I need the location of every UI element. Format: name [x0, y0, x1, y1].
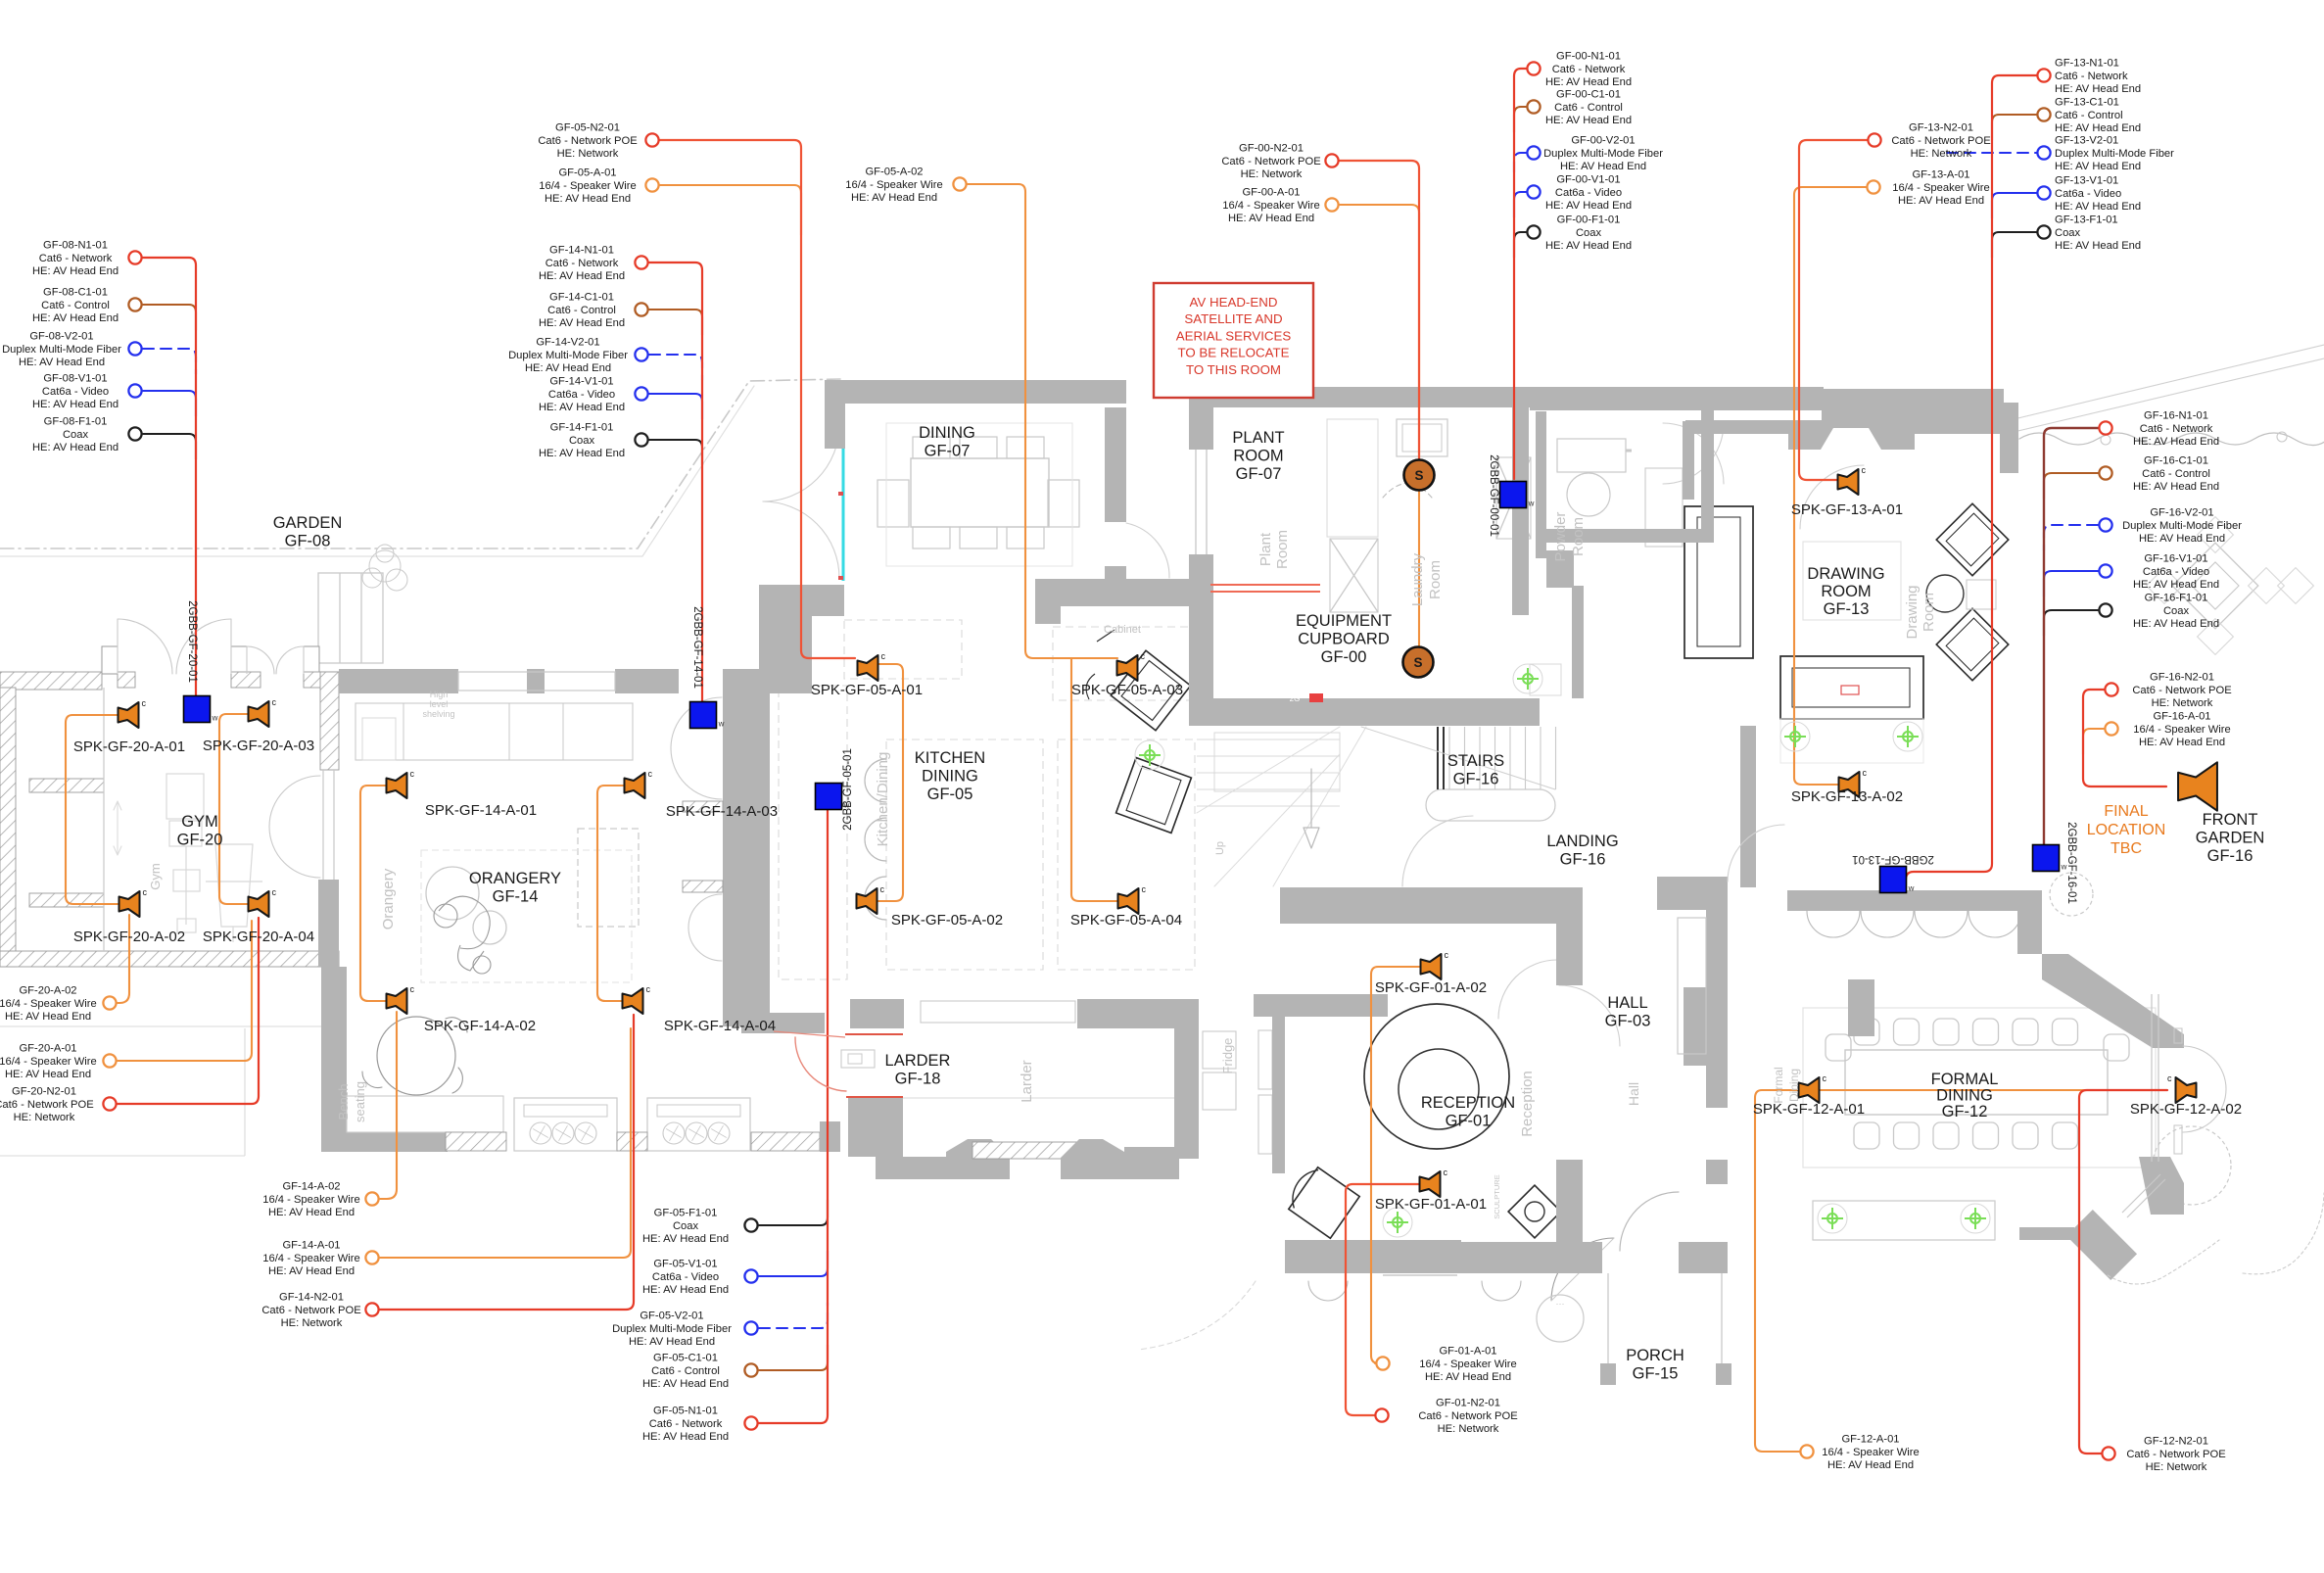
- svg-text:HE: AV Head End: HE: AV Head End: [2133, 481, 2219, 493]
- svg-text:Gym: Gym: [148, 863, 163, 889]
- svg-text:DRAWING: DRAWING: [1807, 565, 1884, 583]
- svg-text:HE: AV Head End: HE: AV Head End: [642, 1431, 729, 1443]
- svg-text:HE: Network: HE: Network: [1438, 1423, 1499, 1435]
- svg-text:HE: AV Head End: HE: AV Head End: [2139, 737, 2225, 748]
- svg-text:16/4 - Speaker Wire: 16/4 - Speaker Wire: [262, 1194, 360, 1206]
- svg-text:SPK-GF-13-A-01: SPK-GF-13-A-01: [1791, 501, 1903, 518]
- svg-text:GF-16: GF-16: [2207, 847, 2253, 865]
- svg-text:RECEPTION: RECEPTION: [1421, 1094, 1515, 1112]
- svg-text:GF-05-F1-01: GF-05-F1-01: [654, 1207, 718, 1218]
- svg-text:Laundry: Laundry: [1409, 552, 1426, 606]
- svg-text:Room: Room: [1427, 560, 1444, 599]
- svg-text:···: ···: [1556, 1299, 1565, 1309]
- svg-text:GF-16-V1-01: GF-16-V1-01: [2144, 552, 2207, 564]
- svg-text:HE: AV Head End: HE: AV Head End: [2055, 201, 2141, 213]
- svg-text:Orangery: Orangery: [380, 868, 397, 929]
- svg-text:GF-15: GF-15: [1633, 1365, 1679, 1383]
- svg-text:HE: AV Head End: HE: AV Head End: [1898, 195, 1984, 207]
- svg-text:Up: Up: [1214, 841, 1226, 855]
- svg-text:c: c: [1862, 465, 1867, 475]
- svg-text:HE: Network: HE: Network: [557, 148, 619, 160]
- svg-text:GF-13: GF-13: [1824, 600, 1870, 618]
- svg-text:FORMAL: FORMAL: [1931, 1071, 1999, 1088]
- svg-text:16/4 - Speaker Wire: 16/4 - Speaker Wire: [845, 179, 943, 191]
- svg-text:HE: AV Head End: HE: AV Head End: [2139, 533, 2225, 545]
- svg-text:ROOM: ROOM: [1821, 583, 1871, 600]
- svg-text:HE: Network: HE: Network: [1241, 168, 1303, 180]
- svg-text:Cat6 - Network POE: Cat6 - Network POE: [2126, 1449, 2225, 1460]
- svg-text:seating: seating: [353, 1081, 367, 1122]
- svg-text:SATELLITE AND: SATELLITE AND: [1184, 311, 1282, 326]
- svg-text:w: w: [212, 714, 218, 723]
- svg-text:GF-14-C1-01: GF-14-C1-01: [549, 291, 614, 303]
- svg-text:Room: Room: [1570, 517, 1587, 556]
- svg-text:Fridge: Fridge: [1220, 1038, 1235, 1074]
- svg-text:c: c: [880, 884, 885, 894]
- svg-text:HE: Network: HE: Network: [2152, 697, 2213, 709]
- svg-text:16/4 - Speaker Wire: 16/4 - Speaker Wire: [1222, 200, 1320, 212]
- svg-text:GF-05-N1-01: GF-05-N1-01: [653, 1405, 718, 1416]
- svg-text:Cat6 - Network: Cat6 - Network: [649, 1418, 723, 1430]
- svg-text:GF-20-N2-01: GF-20-N2-01: [12, 1085, 76, 1097]
- svg-text:S: S: [1413, 655, 1422, 670]
- svg-text:Hall: Hall: [1626, 1082, 1641, 1106]
- svg-text:c: c: [881, 651, 886, 661]
- svg-text:c: c: [143, 887, 148, 897]
- svg-text:Duplex Multi-Mode Fiber: Duplex Multi-Mode Fiber: [1543, 148, 1663, 160]
- svg-text:Kitchen/Dining: Kitchen/Dining: [875, 752, 891, 847]
- svg-text:GF-08-V1-01: GF-08-V1-01: [43, 372, 107, 384]
- svg-text:HE: Network: HE: Network: [281, 1317, 343, 1329]
- svg-text:GF-12-A-01: GF-12-A-01: [1841, 1433, 1899, 1445]
- svg-text:c: c: [410, 984, 415, 994]
- svg-text:Coax: Coax: [2055, 227, 2081, 239]
- svg-text:SPK-GF-20-A-02: SPK-GF-20-A-02: [73, 929, 185, 945]
- svg-text:GF-08-F1-01: GF-08-F1-01: [44, 415, 108, 427]
- svg-text:HE: AV Head End: HE: AV Head End: [2133, 436, 2219, 448]
- svg-text:Cat6 - Network POE: Cat6 - Network POE: [261, 1305, 360, 1316]
- svg-text:HE: AV Head End: HE: AV Head End: [2133, 579, 2219, 591]
- svg-text:SPK-GF-01-A-01: SPK-GF-01-A-01: [1375, 1196, 1487, 1213]
- svg-text:GF-14-N2-01: GF-14-N2-01: [279, 1291, 344, 1303]
- svg-text:HE: AV Head End: HE: AV Head End: [2055, 83, 2141, 95]
- svg-text:TO THIS ROOM: TO THIS ROOM: [1186, 362, 1281, 377]
- svg-text:Plant: Plant: [1257, 532, 1274, 566]
- svg-text:2GBB-GF-13-01: 2GBB-GF-13-01: [1852, 853, 1934, 865]
- svg-text:Duplex Multi-Mode Fiber: Duplex Multi-Mode Fiber: [2122, 520, 2242, 532]
- svg-text:HE: AV Head End: HE: AV Head End: [539, 317, 625, 329]
- svg-text:SPK-GF-12-A-02: SPK-GF-12-A-02: [2130, 1101, 2242, 1118]
- svg-text:Room: Room: [1921, 593, 1937, 632]
- svg-text:GF-14-A-01: GF-14-A-01: [282, 1239, 340, 1251]
- svg-text:ORANGERY: ORANGERY: [469, 870, 561, 887]
- svg-text:c: c: [410, 769, 415, 779]
- svg-text:HE: AV Head End: HE: AV Head End: [32, 399, 119, 410]
- svg-text:GF-05-N2-01: GF-05-N2-01: [555, 121, 620, 133]
- svg-text:SPK-GF-05-A-04: SPK-GF-05-A-04: [1070, 912, 1182, 929]
- svg-text:Cat6 - Network: Cat6 - Network: [39, 253, 113, 264]
- svg-text:DINING: DINING: [919, 424, 975, 442]
- svg-text:c: c: [648, 769, 653, 779]
- svg-text:Cat6 - Control: Cat6 - Control: [41, 300, 110, 311]
- svg-text:Cat6a - Video: Cat6a - Video: [652, 1271, 719, 1283]
- svg-text:Cat6 - Network POE: Cat6 - Network POE: [1221, 156, 1320, 167]
- svg-text:16/4 - Speaker Wire: 16/4 - Speaker Wire: [1892, 182, 1990, 194]
- svg-text:SPK-GF-12-A-01: SPK-GF-12-A-01: [1753, 1101, 1865, 1118]
- svg-text:level: level: [430, 699, 449, 709]
- svg-text:w: w: [1528, 500, 1535, 508]
- svg-text:2GBB-GF-20-01: 2GBB-GF-20-01: [186, 600, 198, 683]
- svg-text:HE: AV Head End: HE: AV Head End: [5, 1069, 91, 1080]
- svg-text:HE: AV Head End: HE: AV Head End: [1560, 161, 1646, 172]
- svg-text:Cat6a - Video: Cat6a - Video: [2055, 188, 2121, 200]
- svg-text:SPK-GF-20-A-04: SPK-GF-20-A-04: [203, 929, 314, 945]
- svg-text:16/4 - Speaker Wire: 16/4 - Speaker Wire: [262, 1253, 360, 1264]
- svg-text:c: c: [1445, 950, 1449, 960]
- svg-text:GF-05-V1-01: GF-05-V1-01: [653, 1258, 717, 1269]
- svg-text:GF-18: GF-18: [895, 1071, 941, 1088]
- svg-text:SPK-GF-14-A-01: SPK-GF-14-A-01: [425, 802, 537, 819]
- svg-text:Coax: Coax: [673, 1220, 699, 1232]
- svg-text:Dining: Dining: [1787, 1069, 1801, 1102]
- svg-text:FINAL: FINAL: [2104, 803, 2148, 820]
- svg-text:Cabinet: Cabinet: [1104, 624, 1141, 636]
- svg-text:HE: AV Head End: HE: AV Head End: [539, 402, 625, 413]
- svg-text:Cat6 - Control: Cat6 - Control: [547, 305, 616, 316]
- svg-text:GARDEN: GARDEN: [273, 514, 343, 532]
- svg-text:HE: AV Head End: HE: AV Head End: [642, 1284, 729, 1296]
- svg-text:c: c: [1823, 1073, 1827, 1083]
- svg-text:HE: Network: HE: Network: [14, 1112, 75, 1123]
- svg-text:c: c: [1444, 1168, 1448, 1177]
- svg-text:c: c: [1141, 651, 1146, 661]
- svg-text:HE: AV Head End: HE: AV Head End: [32, 442, 119, 453]
- svg-text:HE: AV Head End: HE: AV Head End: [2055, 122, 2141, 134]
- svg-text:GF-05-A-02: GF-05-A-02: [865, 166, 923, 177]
- svg-text:Bench: Bench: [336, 1084, 351, 1120]
- svg-text:HE: AV Head End: HE: AV Head End: [642, 1233, 729, 1245]
- svg-text:HE: AV Head End: HE: AV Head End: [32, 312, 119, 324]
- svg-text:GF-05-V2-01: GF-05-V2-01: [640, 1310, 703, 1321]
- svg-text:GF-16-C1-01: GF-16-C1-01: [2144, 454, 2208, 466]
- svg-text:Cat6 - Network: Cat6 - Network: [2140, 423, 2213, 435]
- svg-text:GF-13-F1-01: GF-13-F1-01: [2055, 214, 2118, 225]
- svg-text:CUPBOARD: CUPBOARD: [1298, 631, 1390, 648]
- svg-text:SPK-GF-14-A-04: SPK-GF-14-A-04: [664, 1018, 776, 1034]
- svg-text:16/4 - Speaker Wire: 16/4 - Speaker Wire: [1822, 1447, 1920, 1458]
- svg-text:Coax: Coax: [63, 429, 89, 441]
- svg-text:c: c: [1142, 884, 1147, 894]
- svg-text:SPK-GF-13-A-02: SPK-GF-13-A-02: [1791, 788, 1903, 805]
- svg-text:AERIAL SERVICES: AERIAL SERVICES: [1176, 328, 1292, 343]
- svg-text:GF-14-F1-01: GF-14-F1-01: [550, 421, 614, 433]
- svg-text:c: c: [2167, 1073, 2172, 1083]
- svg-text:Cat6 - Network POE: Cat6 - Network POE: [0, 1099, 94, 1111]
- svg-text:Cat6 - Network: Cat6 - Network: [1552, 64, 1626, 75]
- svg-text:GF-00: GF-00: [1321, 648, 1367, 666]
- svg-text:shelving: shelving: [422, 709, 454, 719]
- svg-text:GF-00-C1-01: GF-00-C1-01: [1556, 88, 1621, 100]
- svg-text:GF-00-V1-01: GF-00-V1-01: [1556, 173, 1620, 185]
- svg-text:Powder: Powder: [1552, 512, 1569, 562]
- svg-text:GF-16-F1-01: GF-16-F1-01: [2145, 592, 2208, 603]
- svg-text:Cat6 - Control: Cat6 - Control: [1554, 102, 1623, 114]
- svg-text:Cat6a - Video: Cat6a - Video: [2143, 566, 2209, 578]
- svg-text:Reception: Reception: [1519, 1071, 1536, 1137]
- svg-text:GF-08-N1-01: GF-08-N1-01: [43, 239, 108, 251]
- svg-text:HE: AV Head End: HE: AV Head End: [1545, 115, 1632, 126]
- svg-text:HE: AV Head End: HE: AV Head End: [539, 448, 625, 459]
- svg-text:HE: AV Head End: HE: AV Head End: [642, 1378, 729, 1390]
- svg-text:DINING: DINING: [1936, 1087, 1993, 1105]
- svg-text:HE: AV Head End: HE: AV Head End: [1545, 200, 1632, 212]
- svg-text:Cat6a - Video: Cat6a - Video: [1555, 187, 1622, 199]
- svg-text:SPK-GF-20-A-01: SPK-GF-20-A-01: [73, 739, 185, 755]
- svg-text:2G: 2G: [1290, 694, 1301, 703]
- svg-text:HE: AV Head End: HE: AV Head End: [1425, 1371, 1511, 1383]
- svg-text:Formal: Formal: [1772, 1067, 1785, 1103]
- svg-text:HE: AV Head End: HE: AV Head End: [2133, 618, 2219, 630]
- svg-text:Duplex Multi-Mode Fiber: Duplex Multi-Mode Fiber: [2055, 148, 2174, 160]
- svg-text:HE: AV Head End: HE: AV Head End: [525, 362, 611, 374]
- svg-text:SPK-GF-14-A-03: SPK-GF-14-A-03: [666, 803, 778, 820]
- svg-text:AV HEAD-END: AV HEAD-END: [1190, 295, 1278, 310]
- svg-text:w: w: [718, 720, 725, 729]
- svg-text:Cat6 - Control: Cat6 - Control: [2142, 468, 2210, 480]
- svg-text:Duplex Multi-Mode Fiber: Duplex Multi-Mode Fiber: [2, 344, 121, 356]
- svg-text:GF-07: GF-07: [925, 443, 971, 460]
- svg-text:STAIRS: STAIRS: [1447, 752, 1504, 770]
- svg-text:GF-14-V2-01: GF-14-V2-01: [536, 336, 599, 348]
- svg-text:Cat6 - Network: Cat6 - Network: [545, 258, 619, 269]
- svg-text:GF-14-N1-01: GF-14-N1-01: [549, 244, 614, 256]
- svg-text:HE: AV Head End: HE: AV Head End: [1545, 76, 1632, 88]
- svg-text:GF-12-N2-01: GF-12-N2-01: [2144, 1435, 2208, 1447]
- svg-text:SPK-GF-05-A-03: SPK-GF-05-A-03: [1071, 682, 1183, 698]
- svg-text:EQUIPMENT: EQUIPMENT: [1296, 612, 1392, 630]
- svg-text:16/4 - Speaker Wire: 16/4 - Speaker Wire: [1419, 1358, 1517, 1370]
- svg-text:Coax: Coax: [2163, 605, 2190, 617]
- svg-text:GF-13-N2-01: GF-13-N2-01: [1909, 121, 1973, 133]
- svg-text:High: High: [430, 690, 449, 699]
- svg-text:16/4 - Speaker Wire: 16/4 - Speaker Wire: [2133, 724, 2231, 736]
- svg-text:GF-08-C1-01: GF-08-C1-01: [43, 286, 108, 298]
- svg-text:GF-20: GF-20: [177, 832, 223, 849]
- svg-text:GF-20-A-02: GF-20-A-02: [19, 984, 76, 996]
- svg-text:HE: AV Head End: HE: AV Head End: [32, 265, 119, 277]
- svg-text:GF-16-N2-01: GF-16-N2-01: [2150, 671, 2214, 683]
- svg-text:SPK-GF-05-A-02: SPK-GF-05-A-02: [891, 912, 1003, 929]
- svg-text:GF-05-C1-01: GF-05-C1-01: [653, 1352, 718, 1363]
- svg-text:SCULPTURE: SCULPTURE: [1493, 1174, 1501, 1218]
- svg-text:Cat6 - Network POE: Cat6 - Network POE: [2132, 685, 2231, 696]
- svg-text:SPK-GF-20-A-03: SPK-GF-20-A-03: [203, 738, 314, 754]
- svg-text:GF-16-N1-01: GF-16-N1-01: [2144, 409, 2208, 421]
- svg-text:GF-01-N2-01: GF-01-N2-01: [1436, 1397, 1500, 1408]
- svg-text:HALL: HALL: [1607, 994, 1647, 1012]
- svg-text:Drawing: Drawing: [1904, 585, 1921, 639]
- svg-text:c: c: [646, 984, 651, 994]
- svg-text:HE: AV Head End: HE: AV Head End: [539, 270, 625, 282]
- svg-text:2GBB-GF-14-01: 2GBB-GF-14-01: [691, 606, 703, 689]
- svg-text:c: c: [1863, 768, 1868, 778]
- svg-text:GF-07: GF-07: [1236, 465, 1282, 483]
- svg-text:PORCH: PORCH: [1626, 1347, 1684, 1364]
- svg-text:GF-14-A-02: GF-14-A-02: [282, 1180, 340, 1192]
- svg-text:Cat6 - Control: Cat6 - Control: [2055, 110, 2123, 121]
- svg-text:Cat6 - Network POE: Cat6 - Network POE: [538, 135, 637, 147]
- svg-text:Coax: Coax: [1576, 227, 1602, 239]
- svg-text:S: S: [1414, 468, 1423, 483]
- svg-text:c: c: [142, 698, 147, 708]
- svg-text:2GBB-GF-16-01: 2GBB-GF-16-01: [2065, 822, 2077, 904]
- svg-text:FRONT: FRONT: [2203, 811, 2258, 829]
- svg-text:HE: AV Head End: HE: AV Head End: [1228, 213, 1314, 224]
- svg-text:GF-00-N2-01: GF-00-N2-01: [1239, 142, 1304, 154]
- svg-text:GF-13-C1-01: GF-13-C1-01: [2055, 96, 2119, 108]
- svg-text:GF-20-A-01: GF-20-A-01: [19, 1042, 76, 1054]
- svg-text:GF-00-F1-01: GF-00-F1-01: [1557, 214, 1621, 225]
- svg-text:GF-16-A-01: GF-16-A-01: [2153, 710, 2210, 722]
- svg-text:HE: AV Head End: HE: AV Head End: [19, 357, 105, 368]
- svg-text:GF-16-V2-01: GF-16-V2-01: [2150, 506, 2213, 518]
- svg-text:Cat6a - Video: Cat6a - Video: [548, 389, 615, 401]
- svg-text:2GBB-GF-05-01: 2GBB-GF-05-01: [842, 748, 854, 831]
- svg-text:Coax: Coax: [569, 435, 595, 447]
- svg-text:GF-01: GF-01: [1446, 1113, 1492, 1130]
- svg-text:c: c: [272, 697, 277, 707]
- svg-text:ROOM: ROOM: [1233, 448, 1283, 465]
- svg-text:Cat6 - Network POE: Cat6 - Network POE: [1891, 135, 1990, 147]
- svg-text:HE: AV Head End: HE: AV Head End: [268, 1207, 355, 1218]
- svg-text:LANDING: LANDING: [1546, 833, 1618, 850]
- svg-text:KITCHEN: KITCHEN: [915, 749, 985, 767]
- svg-text:TO BE RELOCATE: TO BE RELOCATE: [1177, 346, 1289, 360]
- svg-text:HE: Network: HE: Network: [1911, 148, 1972, 160]
- svg-text:HE: AV Head End: HE: AV Head End: [629, 1336, 715, 1348]
- svg-text:GF-01-A-01: GF-01-A-01: [1439, 1345, 1496, 1357]
- svg-text:Larder: Larder: [1019, 1060, 1035, 1102]
- svg-text:GF-00-V2-01: GF-00-V2-01: [1571, 134, 1635, 146]
- svg-text:GYM: GYM: [181, 813, 218, 831]
- svg-text:GF-16: GF-16: [1453, 771, 1499, 788]
- svg-text:LOCATION: LOCATION: [2087, 822, 2166, 838]
- svg-text:Cat6 - Network POE: Cat6 - Network POE: [1418, 1410, 1517, 1422]
- svg-text:GF-14: GF-14: [493, 888, 539, 906]
- svg-text:Duplex Multi-Mode Fiber: Duplex Multi-Mode Fiber: [612, 1323, 732, 1335]
- svg-text:GF-16: GF-16: [1560, 851, 1606, 869]
- svg-text:GF-12: GF-12: [1942, 1103, 1988, 1120]
- svg-text:16/4 - Speaker Wire: 16/4 - Speaker Wire: [539, 180, 637, 192]
- svg-text:Cat6a - Video: Cat6a - Video: [42, 386, 109, 398]
- svg-text:SPK-GF-01-A-02: SPK-GF-01-A-02: [1375, 979, 1487, 996]
- svg-text:GARDEN: GARDEN: [2196, 830, 2265, 847]
- svg-text:GF-00-A-01: GF-00-A-01: [1242, 186, 1300, 198]
- svg-text:HE: AV Head End: HE: AV Head End: [1545, 240, 1632, 252]
- svg-text:GF-08: GF-08: [285, 533, 331, 550]
- svg-text:DINING: DINING: [922, 768, 978, 786]
- svg-text:GF-00-N1-01: GF-00-N1-01: [1556, 50, 1621, 62]
- svg-text:Cat6 - Network: Cat6 - Network: [2055, 71, 2128, 82]
- svg-text:16/4 - Speaker Wire: 16/4 - Speaker Wire: [0, 1056, 97, 1068]
- svg-text:GF-13-N1-01: GF-13-N1-01: [2055, 57, 2119, 69]
- svg-text:HE: AV Head End: HE: AV Head End: [545, 193, 631, 205]
- svg-text:Duplex Multi-Mode Fiber: Duplex Multi-Mode Fiber: [508, 350, 628, 361]
- svg-text:GF-13-V2-01: GF-13-V2-01: [2055, 134, 2118, 146]
- svg-text:GF-13-V1-01: GF-13-V1-01: [2055, 174, 2118, 186]
- svg-text:HE: AV Head End: HE: AV Head End: [5, 1011, 91, 1023]
- svg-text:GF-14-V1-01: GF-14-V1-01: [549, 375, 613, 387]
- svg-text:SPK-GF-05-A-01: SPK-GF-05-A-01: [811, 682, 923, 698]
- svg-text:c: c: [272, 887, 277, 897]
- svg-text:HE: AV Head End: HE: AV Head End: [268, 1265, 355, 1277]
- svg-text:GF-08-V2-01: GF-08-V2-01: [29, 330, 93, 342]
- svg-text:16/4 - Speaker Wire: 16/4 - Speaker Wire: [0, 998, 97, 1010]
- svg-text:LARDER: LARDER: [885, 1052, 951, 1070]
- svg-text:2GBB-GF-00-01: 2GBB-GF-00-01: [1488, 454, 1499, 537]
- svg-text:w: w: [1908, 884, 1915, 893]
- svg-text:GF-05: GF-05: [927, 786, 973, 803]
- svg-text:Cat6 - Control: Cat6 - Control: [651, 1365, 720, 1377]
- svg-text:GF-03: GF-03: [1605, 1013, 1651, 1030]
- svg-text:HE: AV Head End: HE: AV Head End: [1827, 1459, 1914, 1471]
- svg-text:GF-05-A-01: GF-05-A-01: [558, 167, 616, 178]
- svg-text:HE: AV Head End: HE: AV Head End: [2055, 161, 2141, 172]
- svg-text:GF-13-A-01: GF-13-A-01: [1912, 168, 1969, 180]
- svg-text:HE: Network: HE: Network: [2146, 1461, 2207, 1473]
- svg-text:Room: Room: [1274, 530, 1291, 569]
- svg-text:PLANT: PLANT: [1232, 429, 1284, 447]
- svg-text:HE: AV Head End: HE: AV Head End: [851, 192, 937, 204]
- svg-text:SPK-GF-14-A-02: SPK-GF-14-A-02: [424, 1018, 536, 1034]
- svg-text:HE: AV Head End: HE: AV Head End: [2055, 240, 2141, 252]
- svg-text:TBC: TBC: [2111, 840, 2142, 857]
